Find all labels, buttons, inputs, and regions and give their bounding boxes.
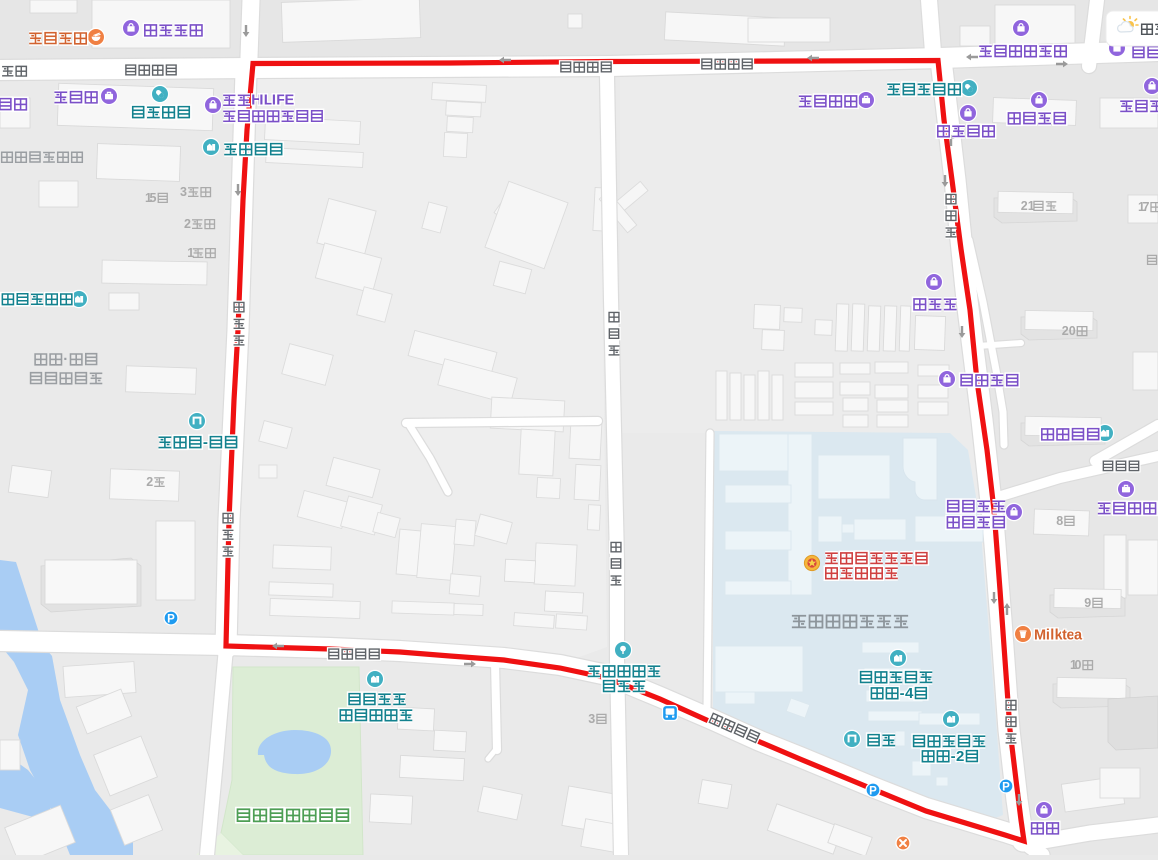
svg-text:8: 8 [1056, 514, 1063, 528]
svg-text:10: 10 [1070, 658, 1082, 672]
svg-text:9: 9 [1084, 596, 1091, 610]
svg-text:P: P [167, 614, 175, 626]
svg-text:20: 20 [1062, 324, 1076, 338]
svg-text:·: · [63, 351, 68, 368]
svg-text:-: - [203, 434, 208, 451]
svg-text:P: P [869, 786, 877, 798]
svg-text:21: 21 [1021, 199, 1035, 213]
svg-text:2: 2 [146, 475, 153, 489]
svg-text:-2: -2 [951, 748, 965, 765]
svg-text:HILIFE: HILIFE [251, 93, 294, 109]
svg-text:-4: -4 [900, 685, 914, 702]
svg-text:3: 3 [180, 185, 187, 199]
svg-text:15: 15 [145, 191, 157, 205]
svg-text:2: 2 [184, 217, 191, 231]
svg-text:Milktea: Milktea [1034, 628, 1083, 644]
svg-text:P: P [1002, 782, 1010, 794]
svg-text:1: 1 [187, 246, 194, 260]
svg-text:17: 17 [1138, 200, 1150, 214]
svg-text:3: 3 [588, 712, 595, 726]
